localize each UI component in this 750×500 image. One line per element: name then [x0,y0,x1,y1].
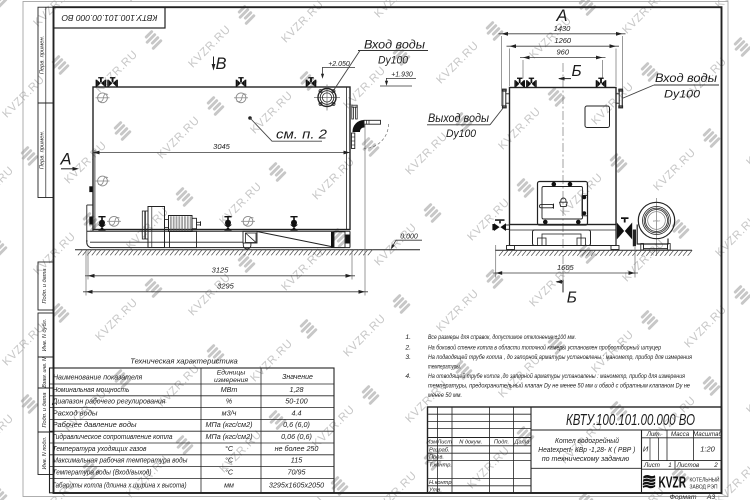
svg-text:°С: °С [225,456,234,465]
svg-text:4.: 4. [405,373,411,380]
svg-text:Температура уходящих газов: Температура уходящих газов [53,444,147,453]
svg-text:3.: 3. [405,354,411,361]
svg-text:KVZR.RU: KVZR.RU [93,48,140,95]
svg-text:+2.050: +2.050 [328,61,350,68]
svg-text:И: И [643,445,649,454]
svg-text:115: 115 [291,456,303,465]
svg-text:N докум.: N докум. [459,439,482,445]
svg-text:KVZR.RU: KVZR.RU [372,0,419,20]
svg-text:KVZR.RU: KVZR.RU [744,121,750,168]
svg-text:температуры, предохранительный: температуры, предохранительный клапан Dу… [428,382,690,390]
svg-text:А: А [59,151,71,169]
svg-text:KVZR.RU: KVZR.RU [465,444,512,491]
svg-text:KVZR.RU: KVZR.RU [279,494,326,500]
svg-text:Гидравлическое сопротивление к: Гидравлическое сопротивление котла [53,432,173,441]
svg-text:На отводящей трубе котла ,до з: На отводящей трубе котла ,до запорной ар… [428,372,685,380]
svg-text:КОТЕЛЬНЫЙ: КОТЕЛЬНЫЙ [690,475,720,483]
svg-text:0,06 (0,6): 0,06 (0,6) [281,432,312,441]
svg-text:3045: 3045 [213,142,231,151]
svg-text:Листов: Листов [676,462,700,469]
svg-text:Техническая характеристика: Техническая характеристика [130,357,238,366]
svg-text:1:20: 1:20 [700,445,715,454]
svg-text:Масса: Масса [671,431,690,438]
svg-text:Выход воды: Выход воды [428,113,490,125]
svg-text:В: В [215,55,226,73]
svg-text:KVZR.RU: KVZR.RU [124,0,171,4]
svg-text:0.000: 0.000 [400,233,418,240]
svg-text:2.: 2. [404,345,411,352]
svg-text:Пров.: Пров. [429,455,444,461]
svg-text:МПа (кгс/см2): МПа (кгс/см2) [206,432,253,441]
svg-text:Масштаб: Масштаб [693,431,722,438]
svg-text:KVZR.RU: KVZR.RU [0,164,16,211]
svg-text:Т.контр.: Т.контр. [429,462,452,468]
svg-text:Б: Б [567,290,577,307]
svg-text:Подп.: Подп. [494,439,509,445]
svg-text:На боковой стенке котла в обла: На боковой стенке котла в области топочн… [428,344,661,352]
svg-text:Диапазон рабочего регулировани: Диапазон рабочего регулирования [52,397,166,406]
svg-text:°С: °С [225,444,234,453]
svg-text:Вход воды: Вход воды [655,73,718,85]
svg-text:KVZR.RU: KVZR.RU [403,130,450,177]
svg-text:0,6 (6,0): 0,6 (6,0) [283,420,310,429]
svg-text:Перв. примен.: Перв. примен. [40,131,46,170]
svg-text:Подп. и дата: Подп. и дата [42,392,48,427]
svg-text:KVZR.RU: KVZR.RU [0,73,47,120]
svg-text:Единицы: Единицы [217,369,245,377]
svg-text:м3/ч: м3/ч [222,408,237,417]
svg-text:Взам. инв. N: Взам. инв. N [42,357,48,387]
svg-text:KVZR.RU: KVZR.RU [434,287,481,334]
svg-text:измерения: измерения [214,377,248,384]
svg-text:4.4: 4.4 [292,408,302,417]
svg-text:КВТУ.100.101.00.000 ВО: КВТУ.100.101.00.000 ВО [61,13,157,23]
svg-text:Дата: Дата [513,439,529,445]
svg-text:МВт: МВт [221,385,238,394]
svg-text:Лит.: Лит. [646,431,662,438]
svg-text:KVZR.RU: KVZR.RU [620,0,667,36]
svg-text:А3: А3 [706,494,716,500]
svg-text:не более 250: не более 250 [275,444,319,453]
svg-text:1430: 1430 [554,24,572,33]
svg-text:2: 2 [713,462,718,469]
svg-text:Инв. N дубл.: Инв. N дубл. [42,319,48,351]
svg-text:KVZR.RU: KVZR.RU [713,212,750,259]
svg-text:70/95: 70/95 [288,467,307,476]
svg-text:см. п. 2: см. п. 2 [276,127,328,142]
svg-text:KVZR.RU: KVZR.RU [496,105,543,152]
svg-text:%: % [226,397,233,406]
svg-text:Габариты котла (длинна х ширин: Габариты котла (длинна х ширина х высота… [53,481,187,490]
svg-text:Формат: Формат [670,494,697,500]
svg-text:Перв. примен.: Перв. примен. [40,36,46,75]
svg-text:Утв.: Утв. [428,487,442,493]
svg-text:KVZR: KVZR [659,474,687,491]
svg-text:по техническому заданию: по техническому заданию [542,454,630,463]
svg-text:Dy100: Dy100 [378,55,409,67]
svg-text:Котел водогрейный: Котел водогрейный [555,436,619,445]
svg-text:960: 960 [556,48,569,57]
svg-text:KVZR.RU: KVZR.RU [434,39,481,86]
svg-text:KVZR.RU: KVZR.RU [0,321,47,368]
svg-text:50-100: 50-100 [285,397,307,406]
svg-text:3295: 3295 [217,282,235,291]
svg-text:мм: мм [224,481,234,490]
svg-text:Разраб.: Разраб. [429,447,450,453]
svg-text:Максимальная рабочая температу: Максимальная рабочая температура воды [53,456,189,465]
svg-text:KVZR.RU: KVZR.RU [0,412,16,459]
svg-text:Н.контр.: Н.контр. [429,480,453,486]
svg-text:Рабочее давление воды: Рабочее давление воды [53,420,138,429]
svg-text:ЗАВОД РЭП: ЗАВОД РЭП [690,484,718,490]
svg-text:КВЗР: КВЗР [653,219,660,223]
svg-text:KVZR.RU: KVZR.RU [186,271,233,318]
svg-text:KVZR.RU: KVZR.RU [155,114,202,161]
svg-text:3125: 3125 [212,266,230,275]
svg-text:KVZR.RU: KVZR.RU [372,221,419,268]
svg-text:Значение: Значение [282,374,313,381]
svg-text:+1.930: +1.930 [391,72,413,79]
svg-text:Dy100: Dy100 [446,128,477,140]
svg-text:Dy100: Dy100 [664,89,701,101]
svg-text:KVZR.RU: KVZR.RU [651,146,698,193]
svg-text:1.: 1. [405,334,411,341]
svg-text:Расход воды: Расход воды [53,408,99,417]
svg-text:Номинальная мощность: Номинальная мощность [53,385,130,394]
svg-text:1605: 1605 [557,263,575,272]
svg-text:Вход воды: Вход воды [364,40,426,52]
svg-text:Наименование показателя: Наименование показателя [53,375,143,382]
svg-text:KVZR.RU: KVZR.RU [372,469,419,500]
svg-text:Подп. и дата: Подп. и дата [42,268,48,303]
svg-text:Б: Б [571,63,581,80]
svg-text:1,28: 1,28 [290,385,304,394]
svg-text:Лист: Лист [436,439,452,445]
svg-text:Heatexpert- КВр -1,28- К ( РВР: Heatexpert- КВр -1,28- К ( РВР ) [538,445,635,454]
svg-text:KVZR.RU: KVZR.RU [589,328,636,375]
svg-text:КВТУ.100.101.00.000 ВО: КВТУ.100.101.00.000 ВО [566,412,695,429]
svg-text:менее 50 мм.: менее 50 мм. [428,392,462,399]
svg-text:Температура воды (Вход/выход): Температура воды (Вход/выход) [53,467,152,476]
svg-text:3295х1605х2050: 3295х1605х2050 [269,481,324,490]
svg-text:°С: °С [225,467,234,476]
svg-text:KVZR.RU: KVZR.RU [93,296,140,343]
svg-text:температуры.: температуры. [428,364,461,371]
svg-text:МПа (кгс/см2): МПа (кгс/см2) [206,420,253,429]
svg-text:А: А [555,7,567,25]
svg-text:Инв. N подл.: Инв. N подл. [42,437,48,470]
svg-text:KVZR.RU: KVZR.RU [341,64,388,111]
svg-text:KVZR.RU: KVZR.RU [744,369,750,416]
svg-text:1: 1 [668,462,671,469]
svg-text:KVZR.RU: KVZR.RU [217,180,264,227]
svg-text:На подводящей трубе котла , д: На подводящей трубе котла , до запорной … [428,353,692,361]
svg-text:KVZR.RU: KVZR.RU [341,312,388,359]
svg-text:KVZR.RU: KVZR.RU [465,196,512,243]
svg-text:1260: 1260 [554,36,572,45]
svg-text:Все размеры для справок, допус: Все размеры для справок, допустимое откл… [428,333,576,341]
svg-text:Лист: Лист [643,462,660,469]
